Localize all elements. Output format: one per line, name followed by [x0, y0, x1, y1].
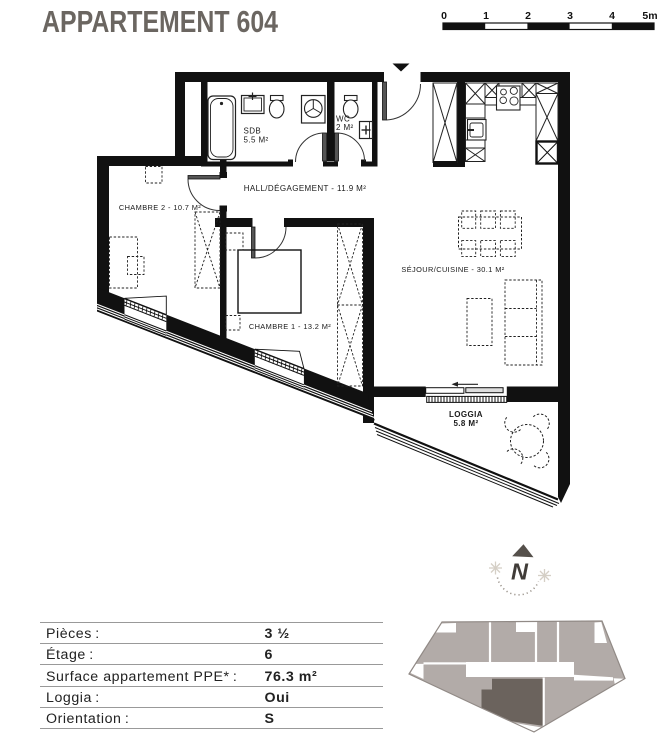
svg-text:3: 3: [567, 10, 573, 22]
svg-text:HALL/DÉGAGEMENT - 11.9 M²: HALL/DÉGAGEMENT - 11.9 M²: [244, 184, 367, 193]
svg-text:LOGGIA: LOGGIA: [449, 410, 483, 419]
svg-text:1: 1: [483, 10, 489, 22]
svg-text:Étage :: Étage :: [46, 646, 94, 663]
svg-text:N: N: [511, 559, 529, 585]
svg-text:6: 6: [265, 647, 273, 663]
svg-text:Loggia :: Loggia :: [46, 690, 100, 706]
svg-text:2: 2: [525, 10, 531, 22]
svg-text:4: 4: [609, 10, 615, 22]
svg-text:S: S: [265, 711, 275, 727]
svg-text:SDB: SDB: [244, 127, 262, 136]
svg-text:CHAMBRE 2 - 10.7 M²: CHAMBRE 2 - 10.7 M²: [119, 203, 201, 212]
svg-text:5m: 5m: [642, 10, 657, 22]
svg-text:0: 0: [441, 10, 447, 22]
svg-text:Surface appartement PPE* :: Surface appartement PPE* :: [46, 669, 237, 685]
svg-text:Oui: Oui: [265, 690, 290, 706]
svg-text:APPARTEMENT 604: APPARTEMENT 604: [42, 5, 278, 39]
svg-text:5.8 M²: 5.8 M²: [453, 419, 478, 428]
svg-text:Orientation :: Orientation :: [46, 711, 129, 727]
svg-text:2 M²: 2 M²: [336, 123, 354, 132]
svg-text:76.3 m²: 76.3 m²: [265, 669, 318, 685]
svg-text:5.5 M²: 5.5 M²: [244, 136, 269, 145]
svg-text:3 ½: 3 ½: [265, 626, 290, 642]
svg-text:Pièces :: Pièces :: [46, 626, 100, 642]
svg-text:CHAMBRE 1 - 13.2 M²: CHAMBRE 1 - 13.2 M²: [249, 322, 331, 331]
svg-text:SÉJOUR/CUISINE - 30.1 M²: SÉJOUR/CUISINE - 30.1 M²: [401, 265, 504, 274]
